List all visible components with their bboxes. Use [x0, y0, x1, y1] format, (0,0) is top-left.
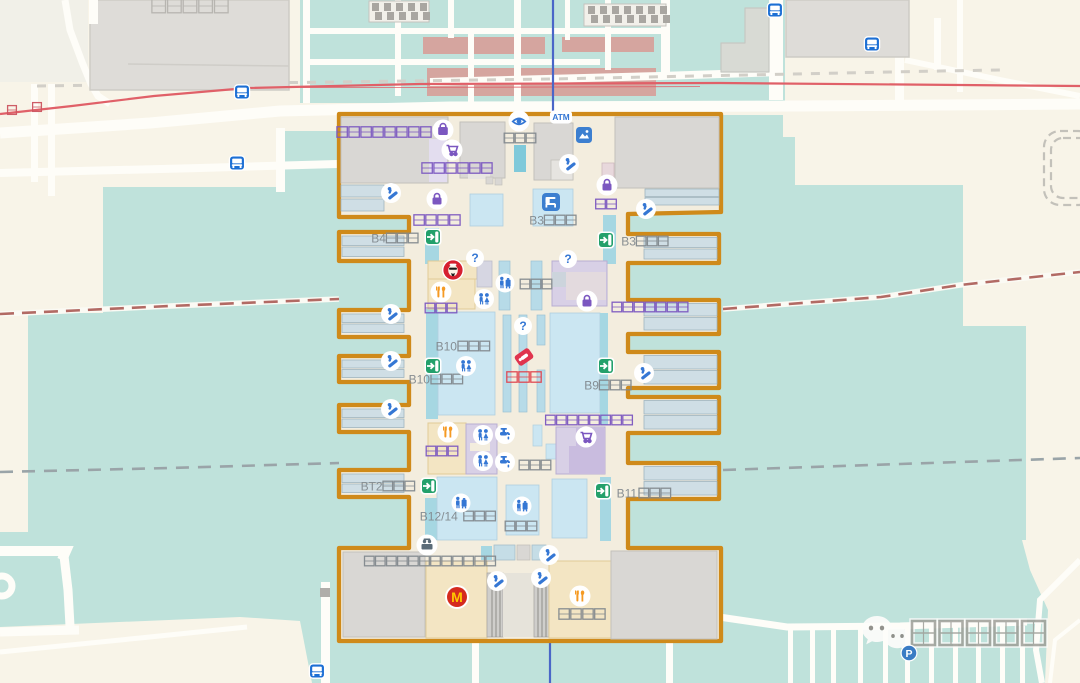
- svg-text:P: P: [905, 648, 912, 660]
- svg-text:B9: B9: [584, 378, 599, 392]
- svg-text:BT2: BT2: [361, 479, 383, 493]
- svg-text:B4: B4: [371, 231, 386, 245]
- svg-text:B11: B11: [617, 486, 638, 500]
- svg-text:B3: B3: [621, 234, 636, 248]
- svg-text:B10: B10: [436, 339, 458, 353]
- svg-text:B10: B10: [409, 372, 431, 386]
- svg-text:B12/14: B12/14: [420, 509, 458, 523]
- svg-text:B3: B3: [529, 213, 544, 227]
